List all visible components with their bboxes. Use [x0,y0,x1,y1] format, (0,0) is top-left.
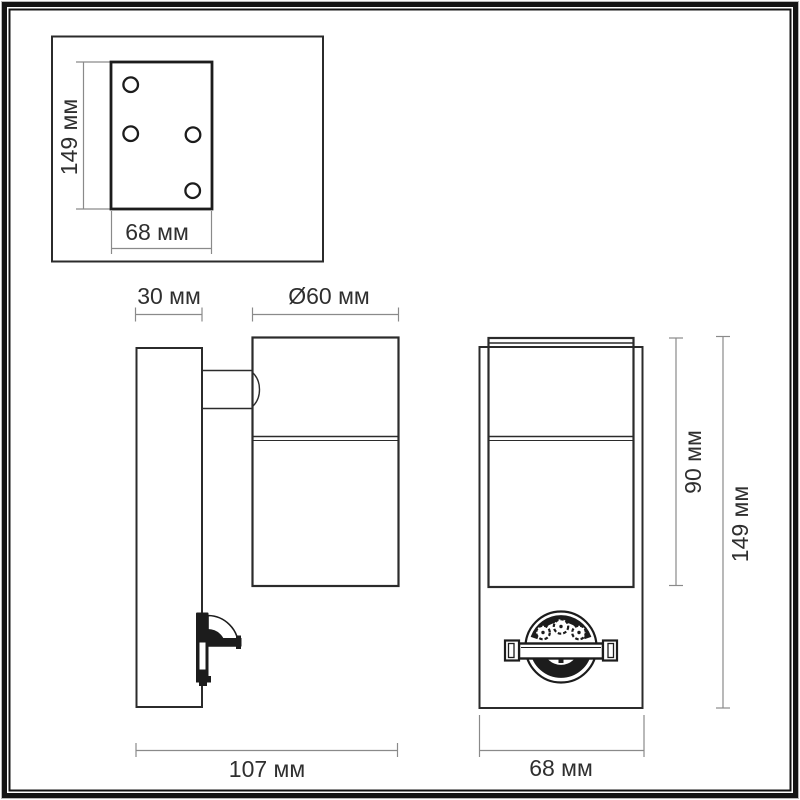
sensor-foot-base [199,682,207,686]
body-height-label: 90 мм [680,430,706,494]
page-background [0,0,800,800]
plate-height-label: 149 мм [56,99,82,175]
sensor-screw-center [541,631,544,634]
plate-width-label: 68 мм [125,219,189,245]
sensor-band-notch [559,658,564,663]
sensor-foot [196,676,211,683]
sensor-band-bar [519,644,603,659]
backplate-depth-label: 30 мм [137,283,201,309]
sensor-band [505,641,617,664]
overall-height-label: 149 мм [727,486,753,562]
overall-depth-label: 107 мм [229,756,305,782]
body-diameter-label: Ø60 мм [288,283,370,309]
sensor-screw-center [577,631,580,634]
sensor-bracket-slot [199,642,206,670]
sensor-arm-tip [236,636,241,650]
front-width-label: 68 мм [529,755,593,781]
technical-drawing-page: 149 мм 68 мм 30 мм [0,0,800,800]
dimension-drawing: 149 мм 68 мм 30 мм [0,0,800,800]
sensor-screw-center [559,625,562,628]
